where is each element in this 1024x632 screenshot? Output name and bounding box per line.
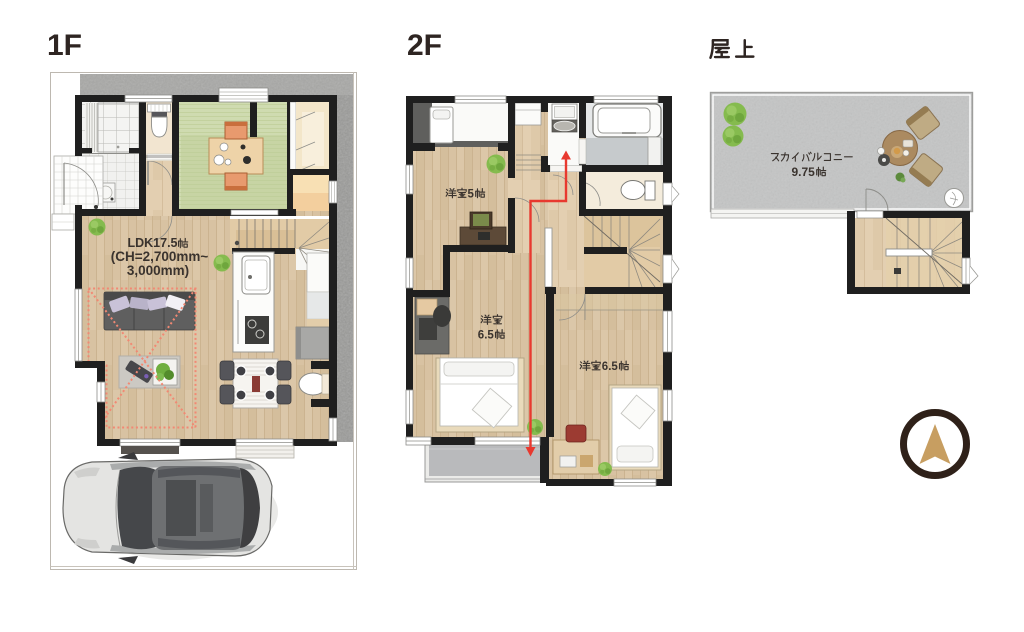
svg-text:9.75: 9.75 [792,165,816,179]
svg-text:6.5: 6.5 [478,330,495,342]
svg-text:1F: 1F [47,29,82,62]
svg-text:LDK17.5: LDK17.5 [127,236,177,250]
svg-text:2F: 2F [407,29,442,62]
svg-text:5: 5 [468,189,475,201]
svg-text:(CH=2,700mm~: (CH=2,700mm~ [111,249,209,264]
svg-text:6.5: 6.5 [602,361,619,373]
svg-text:3,000mm): 3,000mm) [127,263,189,278]
